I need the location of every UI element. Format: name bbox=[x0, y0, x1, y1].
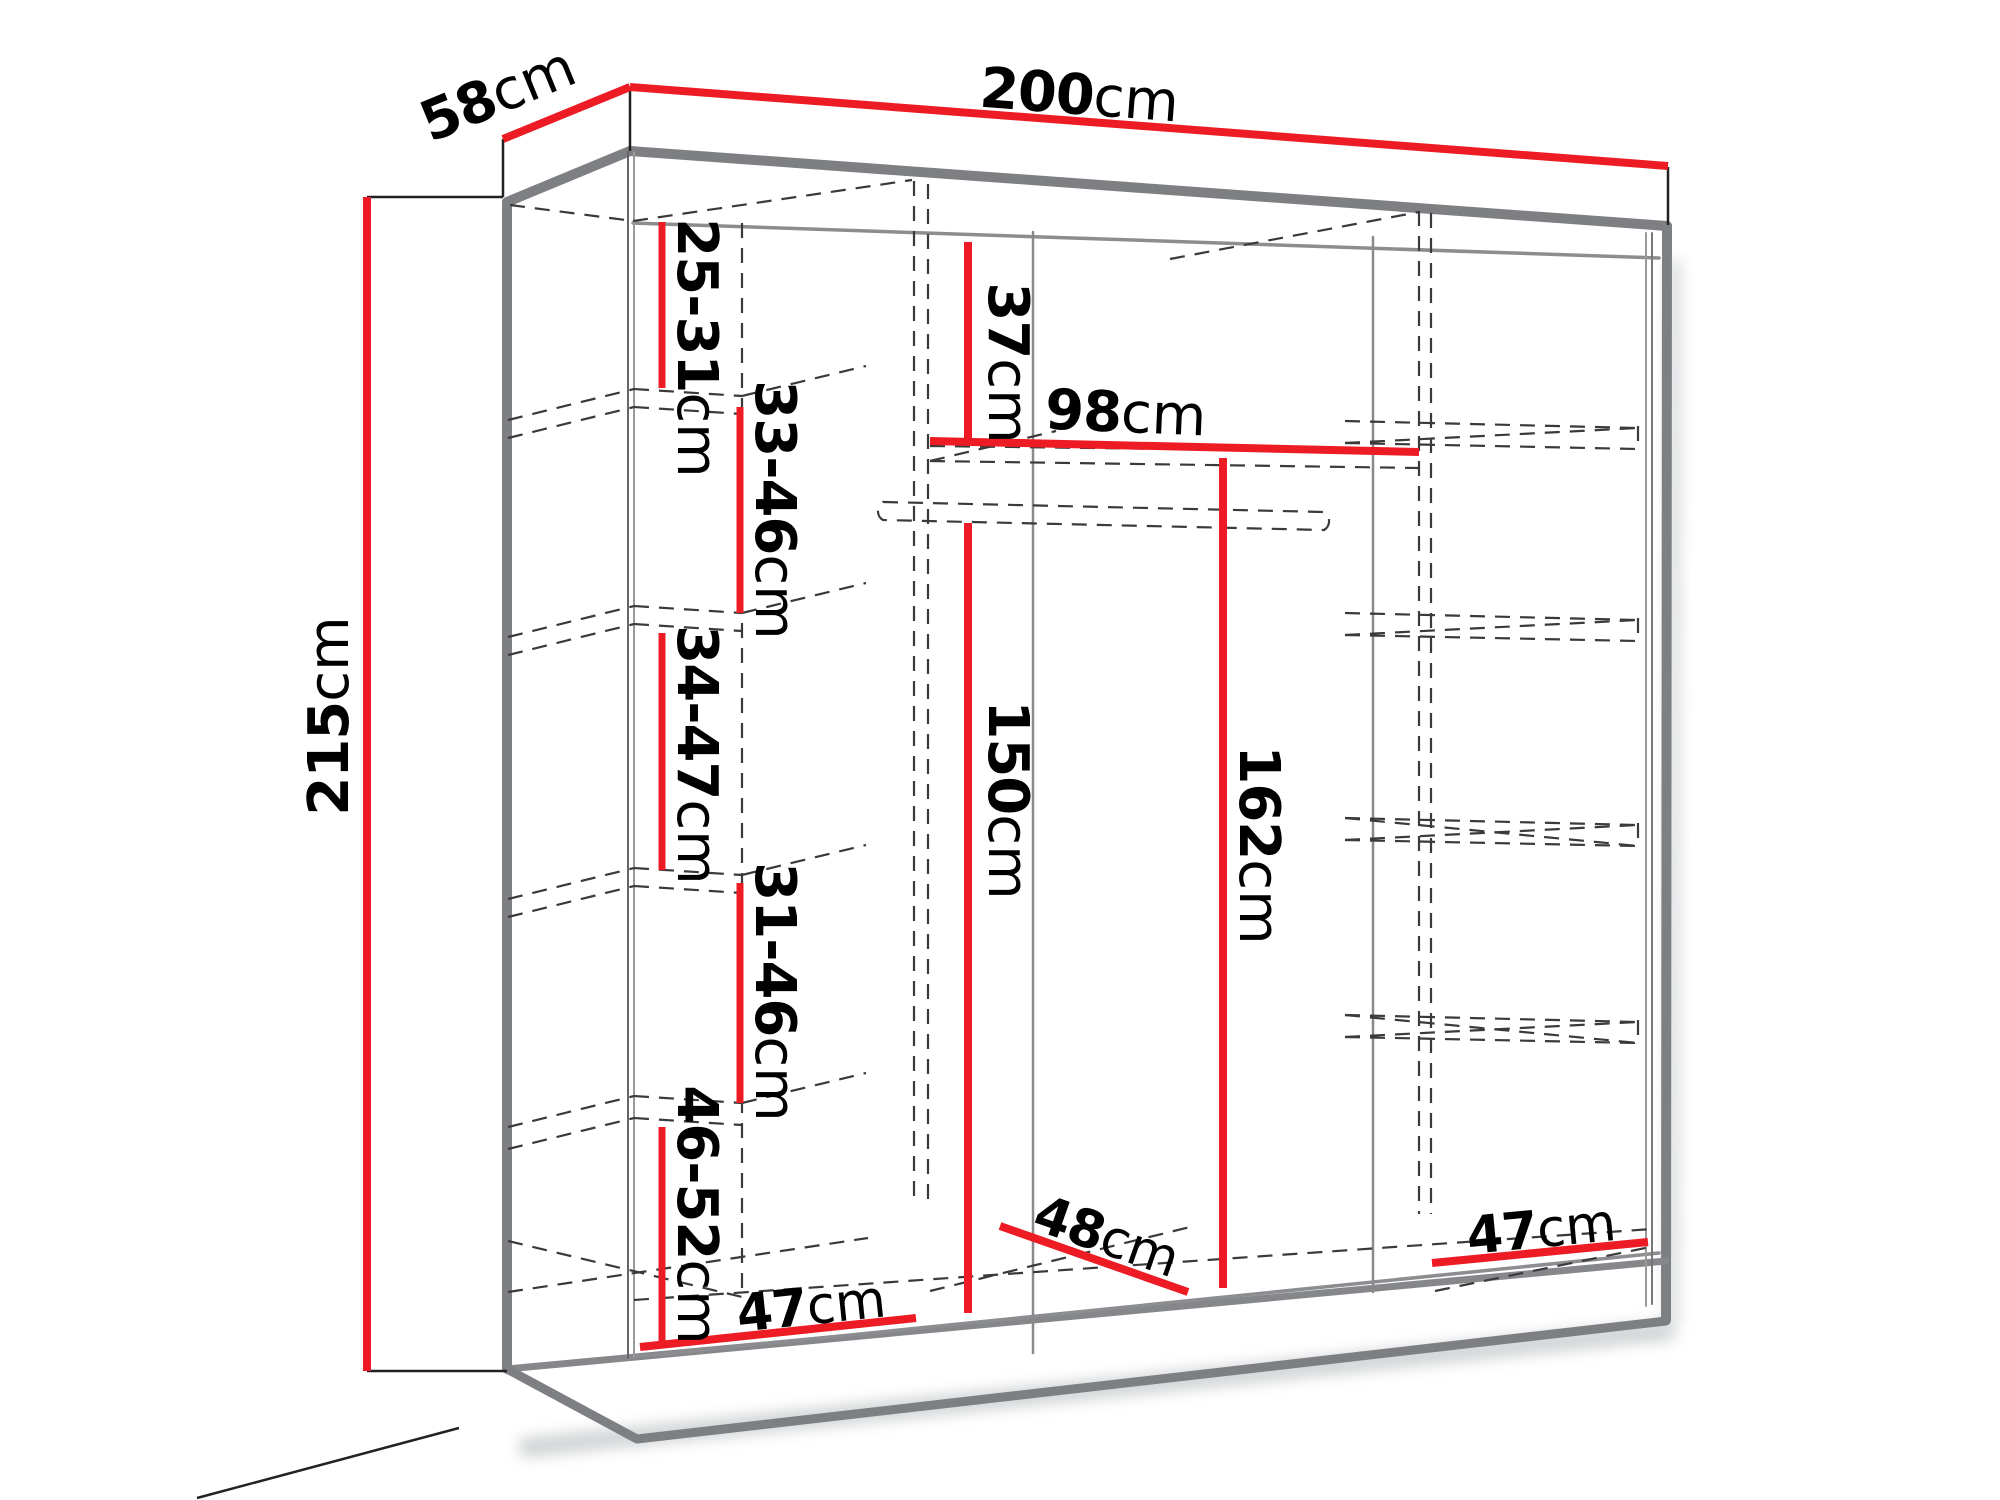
dimension-labels: 58cm 200cm 215cm 25-31cm 33-46cm 34-47cm… bbox=[297, 34, 1619, 1345]
dim-top-clearance-label: 37cm bbox=[975, 282, 1040, 443]
hanging-rail bbox=[878, 502, 1329, 530]
dim-rod-section-width-label: 98cm bbox=[1044, 378, 1208, 450]
dim-left-shelf-gap-4-label: 31-46cm bbox=[742, 862, 807, 1121]
top-front-edge bbox=[507, 151, 1667, 226]
under-top-line bbox=[633, 223, 1659, 258]
right-shelf-3 bbox=[1345, 818, 1638, 848]
dim-width-label: 200cm bbox=[978, 56, 1182, 136]
side-shadow bbox=[1672, 260, 1674, 1326]
dim-left-top-shelf-gap-label: 25-31cm bbox=[664, 218, 729, 477]
dim-left-shelf-gap-3-label: 34-47cm bbox=[664, 625, 729, 884]
diagram-canvas: 58cm 200cm 215cm 25-31cm 33-46cm 34-47cm… bbox=[0, 0, 2000, 1500]
right-shelf-2 bbox=[1345, 613, 1638, 643]
dim-bottom-right-width-label: 47cm bbox=[1464, 1193, 1619, 1267]
extension-lines bbox=[197, 87, 1668, 1498]
dim-left-bottom-shelf-gap-label: 46-52cm bbox=[664, 1085, 729, 1344]
top-depth-dash-left bbox=[510, 205, 633, 221]
right-shelf-4 bbox=[1345, 1015, 1638, 1045]
right-shelf-1 bbox=[1345, 421, 1638, 451]
top-back-dash-right bbox=[1170, 212, 1419, 259]
wardrobe-dimension-diagram: 58cm 200cm 215cm 25-31cm 33-46cm 34-47cm… bbox=[0, 0, 2000, 1500]
dim-depth-label: 58cm bbox=[411, 34, 585, 155]
dim-left-shelf-gap-2-label: 33-46cm bbox=[742, 380, 807, 639]
dim-bottom-depth-label: 48cm bbox=[1026, 1184, 1187, 1290]
dim-right-section-height-label: 162cm bbox=[1226, 745, 1291, 944]
floor-corner-line bbox=[197, 1428, 459, 1498]
middle-shelf-bottom-dash bbox=[930, 461, 1419, 468]
dim-height-label: 215cm bbox=[297, 616, 362, 815]
right-outer-edge bbox=[1666, 226, 1667, 1320]
top-back-dash-left bbox=[633, 180, 912, 221]
dim-hanging-height-label: 150cm bbox=[975, 700, 1040, 899]
